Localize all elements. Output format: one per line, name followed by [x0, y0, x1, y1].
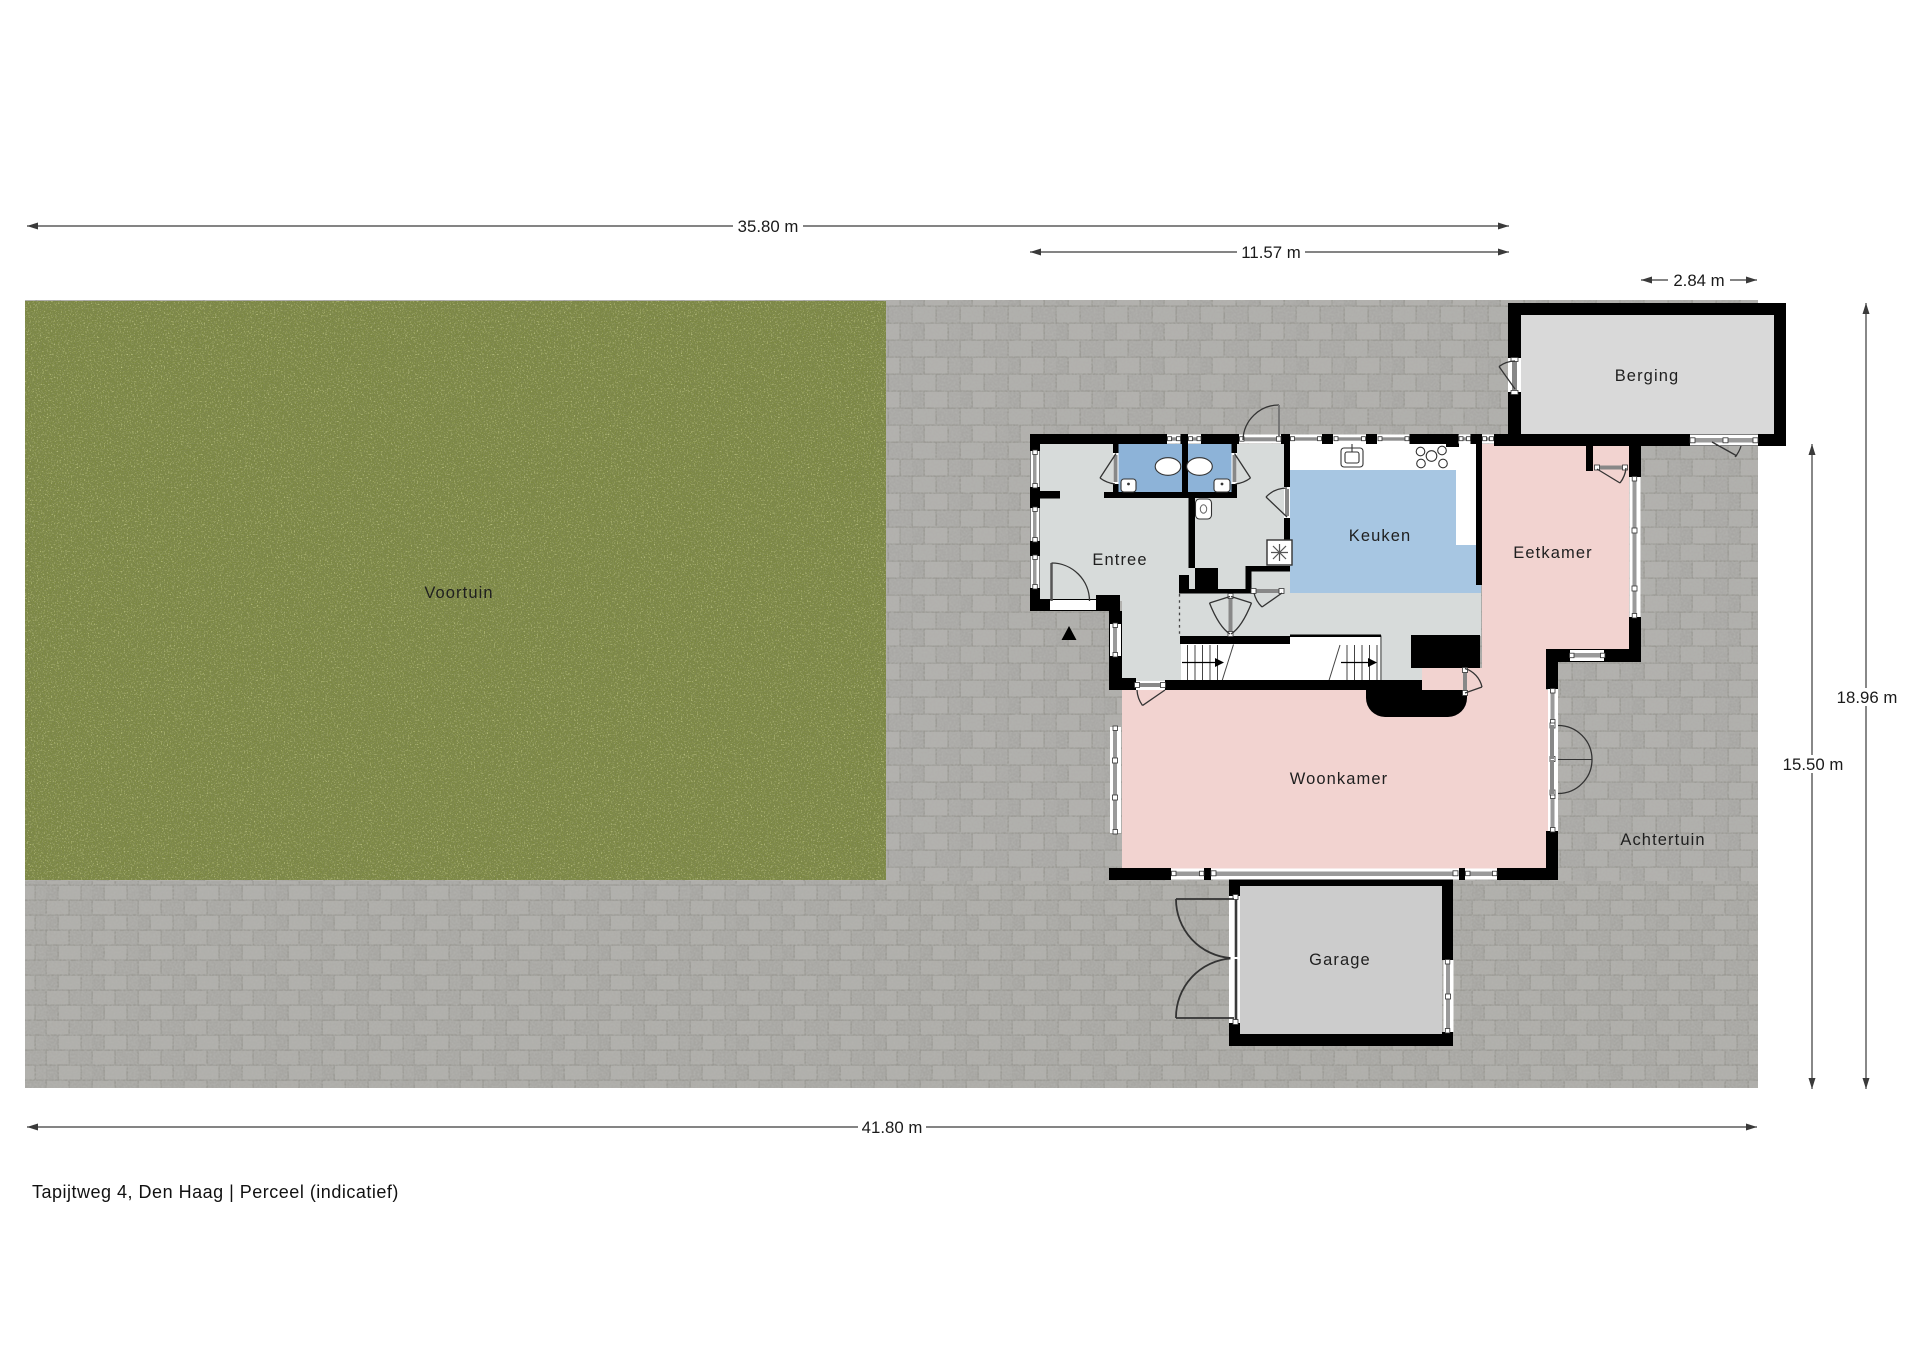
svg-text:11.57 m: 11.57 m [1241, 243, 1300, 262]
svg-text:15.50 m: 15.50 m [1783, 755, 1844, 774]
svg-text:Keuken: Keuken [1349, 527, 1412, 545]
svg-text:2.84 m: 2.84 m [1673, 271, 1724, 290]
svg-text:Tapijtweg 4, Den Haag | Percee: Tapijtweg 4, Den Haag | Perceel (indicat… [32, 1182, 399, 1202]
svg-text:41.80 m: 41.80 m [862, 1118, 923, 1137]
svg-text:Entree: Entree [1092, 551, 1147, 569]
svg-text:35.80 m: 35.80 m [738, 217, 799, 236]
svg-text:Eetkamer: Eetkamer [1513, 544, 1592, 562]
svg-text:Achtertuin: Achtertuin [1620, 831, 1705, 849]
svg-text:18.96 m: 18.96 m [1837, 688, 1898, 707]
svg-text:Woonkamer: Woonkamer [1290, 770, 1389, 788]
svg-text:Garage: Garage [1309, 951, 1371, 969]
svg-text:Berging: Berging [1615, 367, 1680, 385]
svg-text:Voortuin: Voortuin [424, 584, 493, 602]
